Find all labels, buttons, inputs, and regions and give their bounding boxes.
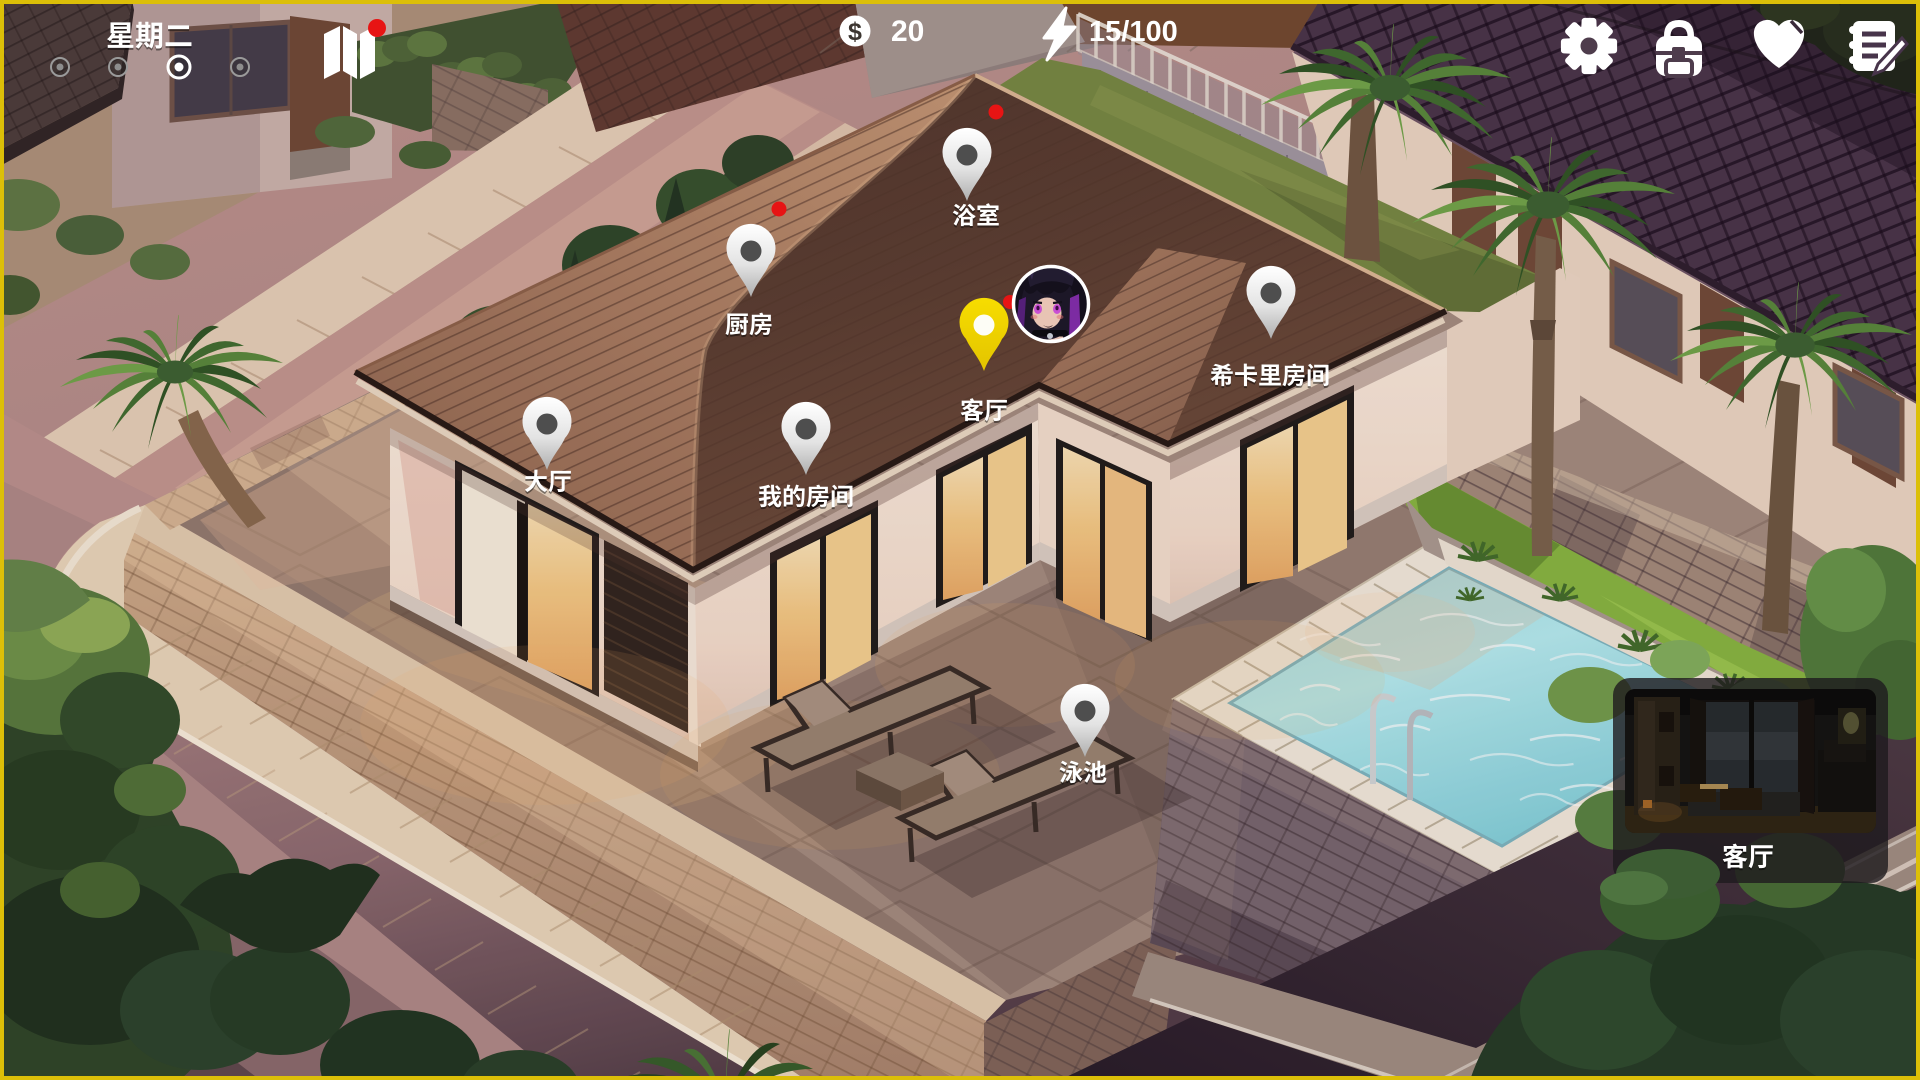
svg-text:15/100: 15/100: [1089, 16, 1178, 48]
svg-text:20: 20: [891, 15, 924, 48]
svg-text:$: $: [848, 18, 862, 46]
